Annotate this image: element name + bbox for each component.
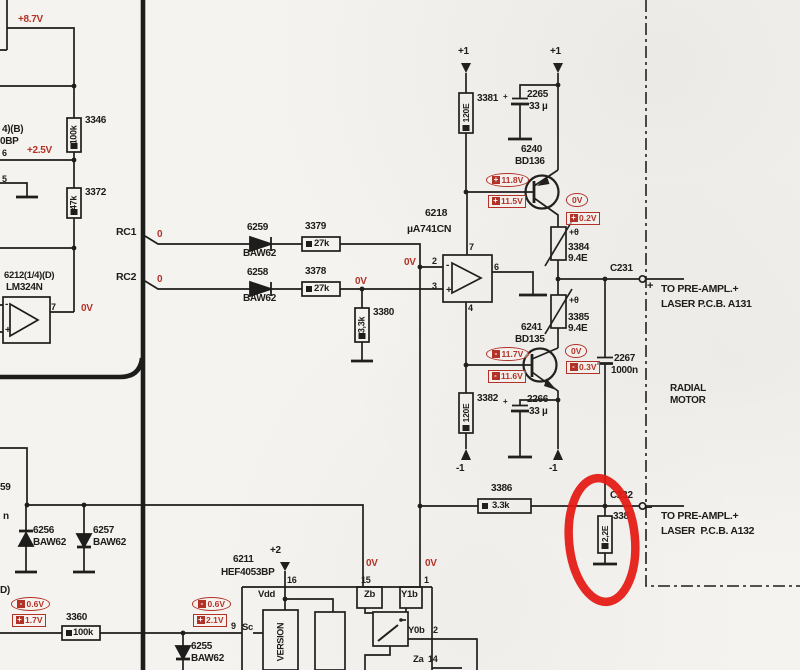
- opamp-pin6: 6: [494, 263, 499, 272]
- meas-minus0p3v-value: 0.3V: [579, 363, 597, 372]
- meas-0v-top: 0V: [566, 193, 588, 207]
- ptc-3384-theta: +θ: [569, 228, 579, 237]
- meas-minus0p6v-left-sign: -: [17, 600, 25, 608]
- voltage-0v-zb: 0V: [366, 559, 378, 569]
- voltage-0v-y1b: 0V: [425, 559, 437, 569]
- opamp-pin2: 2: [432, 257, 437, 266]
- meas-minus0p3v-sign: -: [570, 363, 578, 371]
- cap-2266-id: 2266: [527, 395, 548, 405]
- voltage-2p5v: +2.5V: [27, 146, 52, 156]
- ptc-3385-id: 3385: [568, 313, 589, 323]
- lm324-pin7: 7: [51, 303, 56, 312]
- res-3346-id: 3346: [85, 116, 106, 126]
- transistor-6241-type: BD135: [515, 335, 545, 345]
- meas-minus11p7v-sign: -: [492, 350, 500, 358]
- res-3386-val: 3.3k: [492, 501, 509, 511]
- chip-version: VERSION: [277, 623, 286, 661]
- ic-6211-id: 6211: [233, 555, 254, 565]
- res-3378-val: 27k: [314, 284, 329, 294]
- transistor-6240-type: BD136: [515, 157, 545, 167]
- meas-minus0p6v-right-value: 0.6V: [208, 600, 226, 609]
- opamp-plus: +: [446, 286, 452, 296]
- res-3360-id: 3360: [66, 613, 87, 623]
- voltage-0v-pin2: 0V: [404, 258, 416, 268]
- ptc-3384-val: 9.4E: [568, 254, 587, 264]
- res-3372-id: 3372: [85, 188, 106, 198]
- ptc-3384-id: 3384: [568, 243, 589, 253]
- meas-plus1p7v-sign: +: [16, 616, 24, 624]
- supply-minus1-left: -1: [456, 464, 464, 474]
- meas-minus0p6v-left-value: 0.6V: [27, 600, 45, 609]
- opamp-6218-type: µA741CN: [407, 224, 451, 235]
- chip-pin15: 15: [361, 576, 370, 585]
- res-3382-val: 120E: [462, 404, 471, 423]
- label-motor: MOTOR: [670, 396, 706, 406]
- signal-rc1: RC1: [116, 227, 136, 238]
- transistor-6241-id: 6241: [521, 323, 542, 333]
- dest-a131-line1: TO PRE-AMPL.+: [661, 284, 738, 295]
- pin-5-left: 5: [2, 175, 7, 184]
- meas-plus1p7v: +1.7V: [12, 614, 46, 627]
- meas-plus11p5v-value: 11.5V: [501, 197, 523, 206]
- res-3379-id: 3379: [305, 222, 326, 232]
- chip-pin14: 14: [428, 655, 437, 664]
- meas-minus0p6v-left: -0.6V: [11, 597, 50, 611]
- meas-0v-top-value: 0V: [572, 196, 582, 205]
- meas-plus0p2v-value: 0.2V: [579, 214, 597, 223]
- meas-plus2p1v-value: 2.1V: [206, 616, 224, 625]
- conn-c232-id: C232: [610, 491, 633, 501]
- meas-plus2p1v-sign: +: [197, 616, 205, 624]
- opamp-pin7: 7: [469, 243, 474, 252]
- meas-plus1p7v-value: 1.7V: [25, 616, 43, 625]
- meas-minus11p7v-value: 11.7V: [502, 350, 524, 359]
- res-3372-val: 47k: [70, 196, 79, 210]
- meas-minus0p6v-right-sign: -: [198, 600, 206, 608]
- opamp-pin4: 4: [468, 304, 473, 313]
- opamp-pin3: 3: [432, 282, 437, 291]
- chip-y0b: Y0b: [408, 626, 425, 636]
- frag-ic-b: 4)(B): [2, 125, 23, 135]
- ptc-3385-val: 9.4E: [568, 324, 587, 334]
- meas-minus0p3v: -0.3V: [566, 361, 600, 374]
- res-3360-val: 100k: [73, 628, 93, 638]
- pin-6-left: 6: [2, 149, 7, 158]
- meas-0v-bottom-value: 0V: [571, 347, 581, 356]
- res-3380-id: 3380: [373, 308, 394, 318]
- diode-6256-type: BAW62: [33, 538, 66, 548]
- diode-6259-type: BAW62: [243, 249, 276, 259]
- chip-vdd: Vdd: [258, 590, 275, 600]
- diode-6259-id: 6259: [247, 223, 268, 233]
- chip-pin9: 9: [231, 622, 236, 631]
- conn-c231-plus: +: [647, 281, 653, 292]
- ic-6211-type: HEF4053BP: [221, 568, 274, 578]
- cap-2266-val: 33 µ: [529, 407, 547, 417]
- chip-y1b: Y1b: [401, 590, 418, 600]
- signal-rc2: RC2: [116, 272, 136, 283]
- res-2r2-val: 2,2E: [601, 526, 610, 542]
- supply-minus1-right: -1: [549, 464, 557, 474]
- cap-2265-polarity: +: [503, 93, 507, 101]
- meas-plus0p2v-sign: +: [570, 214, 578, 222]
- meas-plus2p1v: +2.1V: [193, 614, 227, 627]
- meas-plus11p5v: +11.5V: [488, 195, 526, 208]
- res-3379-val: 27k: [314, 239, 329, 249]
- meas-plus0p2v: +0.2V: [566, 212, 600, 225]
- res-3378-id: 3378: [305, 267, 326, 277]
- cap-2267-id: 2267: [614, 354, 635, 364]
- frag-59: 59: [0, 483, 11, 493]
- chip-pin16: 16: [287, 576, 296, 585]
- rc1-level-0: 0: [157, 230, 162, 240]
- rc2-level-0: 0: [157, 275, 162, 285]
- diode-6255-type: BAW62: [191, 654, 224, 664]
- cap-2267-val: 1000n: [611, 366, 638, 376]
- chip-za: Za: [413, 655, 424, 665]
- cap-2266-polarity: +: [503, 398, 507, 406]
- diode-6257-id: 6257: [93, 526, 114, 536]
- meas-minus11p6v-value: 11.6V: [501, 372, 523, 381]
- res-2r2-id: 338: [613, 512, 629, 522]
- meas-plus11p5v-sign: +: [492, 197, 500, 205]
- chip-sc: Sc: [242, 623, 253, 633]
- meas-plus11p8v-sign: +: [492, 176, 500, 184]
- voltage-8p7v: +8.7V: [18, 15, 43, 25]
- cap-2265-id: 2265: [527, 90, 548, 100]
- lm324-minus: -: [5, 300, 8, 310]
- dest-a132-line1: TO PRE-AMPL.+: [661, 511, 738, 522]
- frag-d: D): [0, 586, 10, 596]
- voltage-0v-3380: 0V: [355, 277, 367, 287]
- res-3380-val: 3,3k: [358, 317, 367, 333]
- res-3381-val: 120E: [462, 104, 471, 123]
- res-3381-id: 3381: [477, 94, 498, 104]
- label-layer: +8.7V4)(B)0BP3346100k+2.5V65337247k6212(…: [0, 0, 800, 670]
- meas-plus11p8v-value: 11.8V: [502, 176, 524, 185]
- ic-6212-id: 6212(1/4)(D): [4, 271, 54, 281]
- cap-2265-val: 33 µ: [529, 102, 547, 112]
- res-3382-id: 3382: [477, 394, 498, 404]
- supply-plus1-right: +1: [550, 47, 561, 57]
- supply-plus2: +2: [270, 546, 281, 556]
- opamp-6218-id: 6218: [425, 208, 447, 219]
- meas-minus0p6v-right: -0.6V: [192, 597, 231, 611]
- conn-c231-id: C231: [610, 264, 633, 274]
- ic-6212-type: LM324N: [6, 283, 43, 293]
- meas-minus11p6v-sign: -: [492, 372, 500, 380]
- diode-6255-id: 6255: [191, 642, 212, 652]
- meas-minus11p6v: -11.6V: [488, 370, 526, 383]
- res-3386-id: 3386: [491, 484, 512, 494]
- schematic-scan: +8.7V4)(B)0BP3346100k+2.5V65337247k6212(…: [0, 0, 800, 670]
- frag-n: n: [3, 512, 9, 522]
- meas-minus11p7v: -11.7V: [486, 347, 529, 361]
- label-radial: RADIAL: [670, 384, 706, 394]
- dest-a132-line2: LASER P.C.B. A132: [661, 526, 754, 537]
- chip-pin1: 1: [424, 576, 429, 585]
- conn-c232-minus: −: [646, 503, 652, 514]
- transistor-6240-id: 6240: [521, 145, 542, 155]
- opamp-minus: -: [446, 261, 449, 271]
- res-3346-val: 100k: [70, 126, 79, 145]
- supply-plus1-left: +1: [458, 47, 469, 57]
- frag-ic-bp: 0BP: [0, 137, 19, 147]
- chip-pin2: 2: [433, 626, 438, 635]
- diode-6258-type: BAW62: [243, 294, 276, 304]
- voltage-0v-lm324: 0V: [81, 304, 93, 314]
- ptc-3385-theta: +θ: [569, 296, 579, 305]
- dest-a131-line2: LASER P.C.B. A131: [661, 299, 752, 310]
- meas-plus11p8v: +11.8V: [486, 173, 529, 187]
- chip-zb: Zb: [364, 590, 375, 600]
- lm324-plus: +: [5, 326, 11, 336]
- diode-6258-id: 6258: [247, 268, 268, 278]
- diode-6256-id: 6256: [33, 526, 54, 536]
- meas-0v-bottom: 0V: [565, 344, 587, 358]
- diode-6257-type: BAW62: [93, 538, 126, 548]
